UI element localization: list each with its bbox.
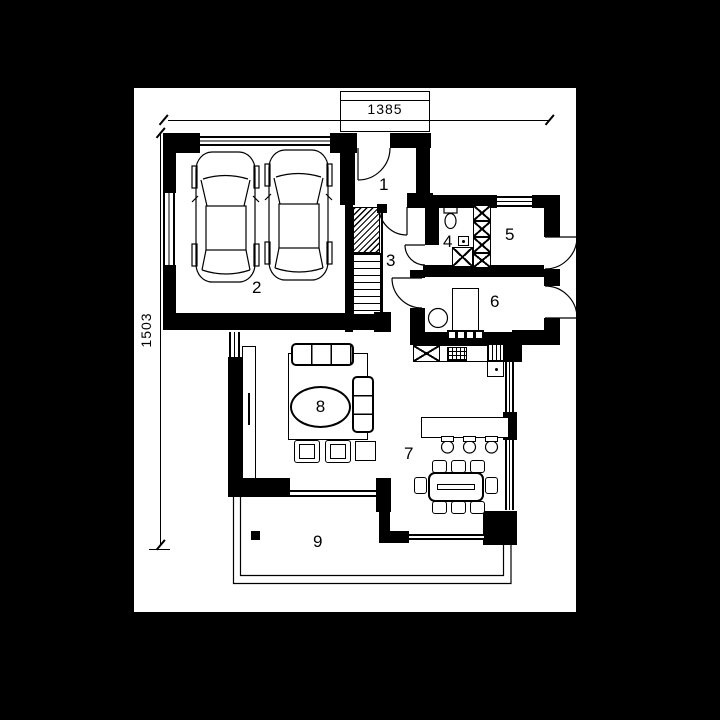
kitchen-side-window (505, 362, 514, 412)
wall (544, 195, 560, 237)
room-label-garage: 2 (252, 279, 261, 297)
kitchen-counter-units (447, 330, 484, 340)
dimension-end-line (149, 549, 170, 550)
wall (390, 133, 431, 148)
stairs-edge-line (381, 207, 383, 332)
wall (228, 478, 290, 497)
dimension-height-label: 1503 (138, 298, 154, 362)
wall (410, 270, 425, 278)
room-label-wc: 4 (443, 233, 452, 251)
bar-stool-back (463, 436, 476, 442)
room-label-dining: 7 (404, 445, 413, 463)
wardrobe-cabinet-icon (473, 237, 491, 253)
coffee-table-oval: 8 (290, 386, 351, 428)
sofa-icon (291, 343, 354, 366)
dining-chair (470, 501, 485, 514)
dining-chair (451, 501, 466, 514)
wall (544, 318, 560, 345)
stairs-steps (353, 253, 381, 315)
wall (379, 531, 409, 543)
armchair-icon (294, 440, 320, 463)
bar-stool-back (485, 436, 498, 442)
sofa-icon (352, 376, 374, 433)
room-label-vestibule: 1 (379, 176, 388, 194)
corner-cabinet-icon (413, 345, 440, 362)
dimension-width-label: 1385 (350, 101, 420, 117)
room-label-kitchen: 6 (490, 293, 499, 311)
wall (544, 269, 560, 286)
wall (163, 313, 391, 330)
stairs-wall (345, 205, 353, 332)
dining-table-center (437, 484, 475, 490)
toilet-icon (444, 205, 457, 229)
garage-window (163, 193, 175, 265)
room-label-terrace: 9 (313, 533, 322, 551)
wall-cabinet-line (248, 393, 250, 425)
stove-icon (447, 347, 467, 361)
room-label-living: 8 (316, 397, 325, 417)
side-table (355, 441, 376, 461)
wall (163, 148, 176, 193)
dining-glass-door (409, 534, 484, 540)
sink-icon (487, 361, 504, 377)
bar-stool-icon (442, 441, 498, 453)
dimension-line-top (168, 120, 550, 121)
terrace-post (251, 531, 260, 540)
dining-window (505, 440, 514, 510)
dimension-line-left (160, 133, 161, 545)
dining-chair (432, 501, 447, 514)
side-window (229, 332, 240, 357)
dining-chair (414, 477, 427, 494)
wall (483, 511, 517, 545)
bar-stool-back (441, 436, 454, 442)
room-label-pantry: 5 (505, 226, 514, 244)
hall-to-wc-door (405, 245, 425, 265)
kitchen-island (452, 288, 479, 331)
wardrobe-cabinet-icon (473, 253, 491, 268)
wall (503, 345, 522, 362)
pantry-window (497, 196, 532, 207)
stairs-upper-flight (353, 207, 380, 253)
boiler-icon (458, 236, 469, 246)
wall (532, 195, 544, 208)
car-icon (192, 152, 259, 282)
room-label-hall: 3 (386, 252, 395, 270)
shower-icon (452, 247, 473, 267)
dining-chair (485, 477, 498, 494)
wall (340, 148, 355, 205)
screenshot-root: { "title": "house-ground-floor-plan", "d… (0, 0, 720, 720)
terrace-glass-door (290, 490, 376, 497)
wall (416, 148, 430, 195)
kitchen-sink-circle-icon (429, 309, 448, 328)
pantry-exterior-door (545, 237, 577, 269)
hall-to-kitchen-door (392, 278, 422, 308)
wall (425, 195, 439, 245)
wall (228, 357, 242, 478)
garage-door (200, 136, 330, 146)
wardrobe-cabinet-icon (473, 221, 491, 237)
car-icon (265, 150, 332, 280)
wardrobe-cabinet-icon (473, 205, 491, 221)
kitchen-exterior-door (545, 286, 577, 318)
bar-counter (421, 417, 508, 438)
fridge-icon (487, 344, 504, 361)
armchair-icon (325, 440, 351, 463)
